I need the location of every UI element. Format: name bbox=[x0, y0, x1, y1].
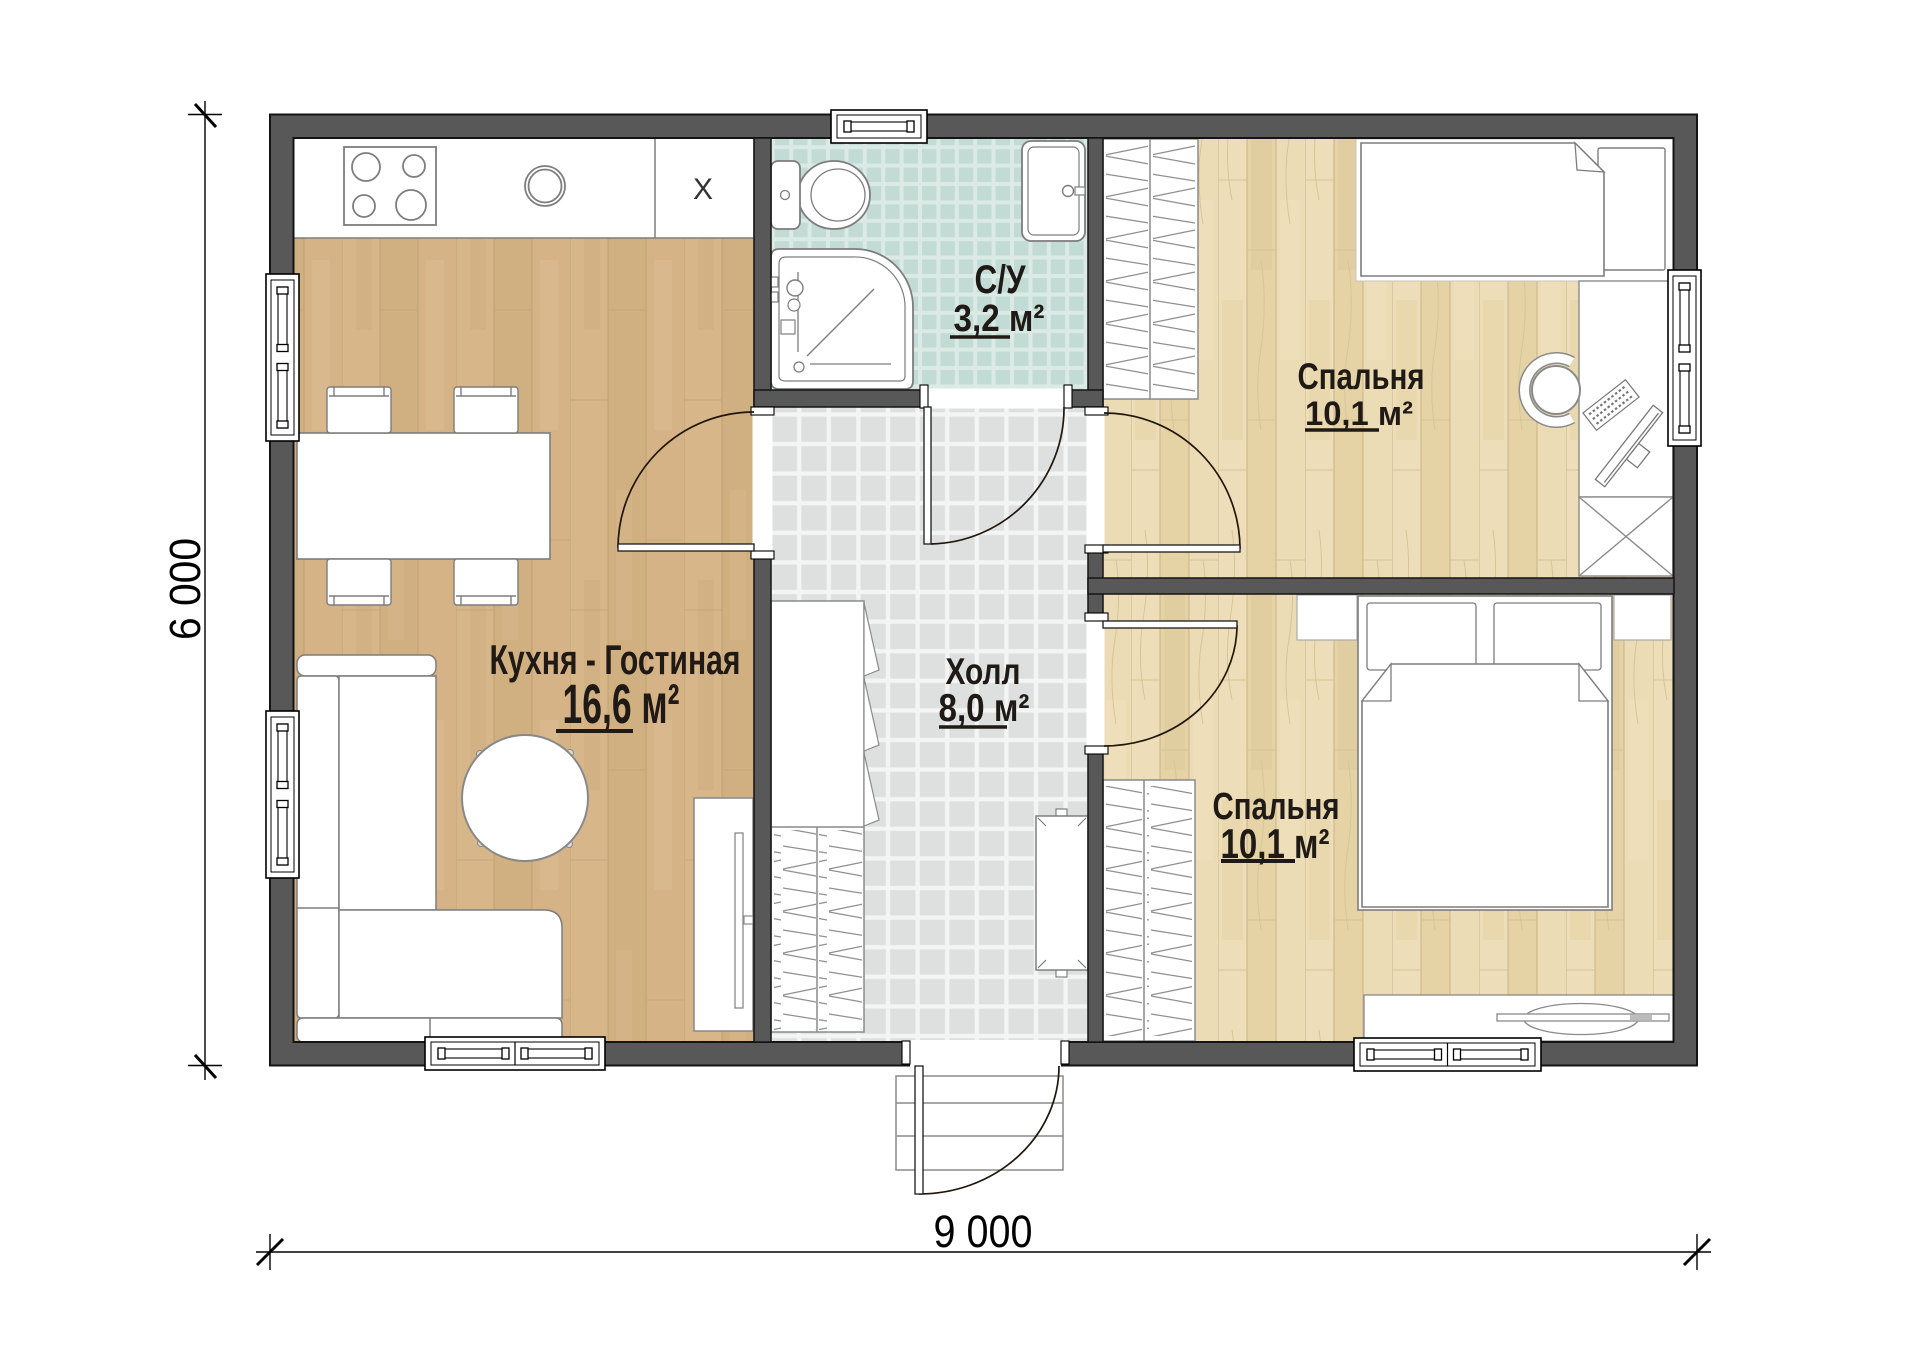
svg-text:С/У: С/У bbox=[975, 258, 1027, 302]
svg-text:10,1 м²: 10,1 м² bbox=[1305, 395, 1413, 433]
svg-text:8,0 м²: 8,0 м² bbox=[939, 687, 1030, 730]
svg-text:Спальня: Спальня bbox=[1298, 355, 1425, 397]
svg-text:9 000: 9 000 bbox=[934, 1206, 1033, 1257]
svg-text:16,6 м²: 16,6 м² bbox=[563, 672, 680, 735]
svg-text:3,2 м²: 3,2 м² bbox=[954, 298, 1045, 340]
svg-text:6 000: 6 000 bbox=[161, 538, 210, 640]
svg-text:Холл: Холл bbox=[946, 651, 1021, 692]
svg-text:X: X bbox=[693, 173, 713, 206]
